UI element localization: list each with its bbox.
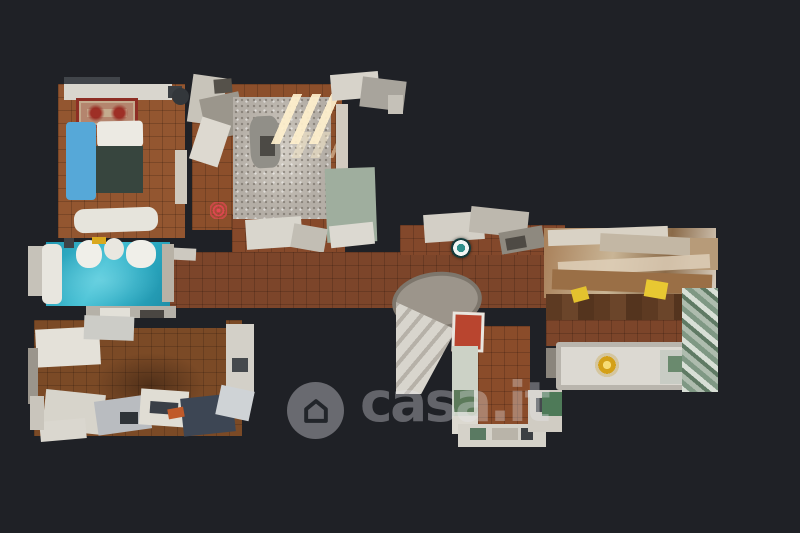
watermark-badge: [287, 382, 344, 439]
yellow-item: [92, 237, 106, 244]
bench: [74, 207, 159, 234]
wall-gap: [134, 318, 226, 328]
bidet: [104, 238, 124, 260]
chandelier-top: [594, 352, 620, 378]
balcony-slab: [388, 95, 403, 114]
wall-segment: [162, 244, 174, 302]
bed-duvet: [96, 146, 143, 193]
metal-shelf: [84, 315, 135, 341]
yellow-item: [644, 279, 669, 300]
wall-segment: [30, 396, 44, 430]
screenshot-root: casa.it: [0, 0, 800, 533]
dark-item: [120, 412, 138, 424]
stool-top: [172, 88, 189, 105]
white-item: [39, 418, 87, 442]
apartment-floorplan[interactable]: [0, 0, 800, 533]
bed-blanket-blue: [66, 122, 96, 200]
bed-pillows: [97, 121, 143, 148]
sink: [126, 240, 156, 268]
dark-item: [213, 78, 232, 94]
bathtub: [42, 244, 62, 304]
white-shelf: [329, 222, 375, 248]
glass-shelves: [682, 288, 718, 392]
viewpoint-marker[interactable]: [210, 202, 227, 219]
house-icon: [301, 396, 331, 426]
camera-position-marker[interactable]: [451, 238, 471, 258]
toilet: [76, 240, 102, 268]
radiator: [175, 150, 187, 204]
corridor-floor: [163, 252, 565, 308]
dark-item: [232, 358, 248, 372]
watermark-brand-text: casa.it: [360, 376, 548, 428]
dark-item: [64, 238, 74, 248]
